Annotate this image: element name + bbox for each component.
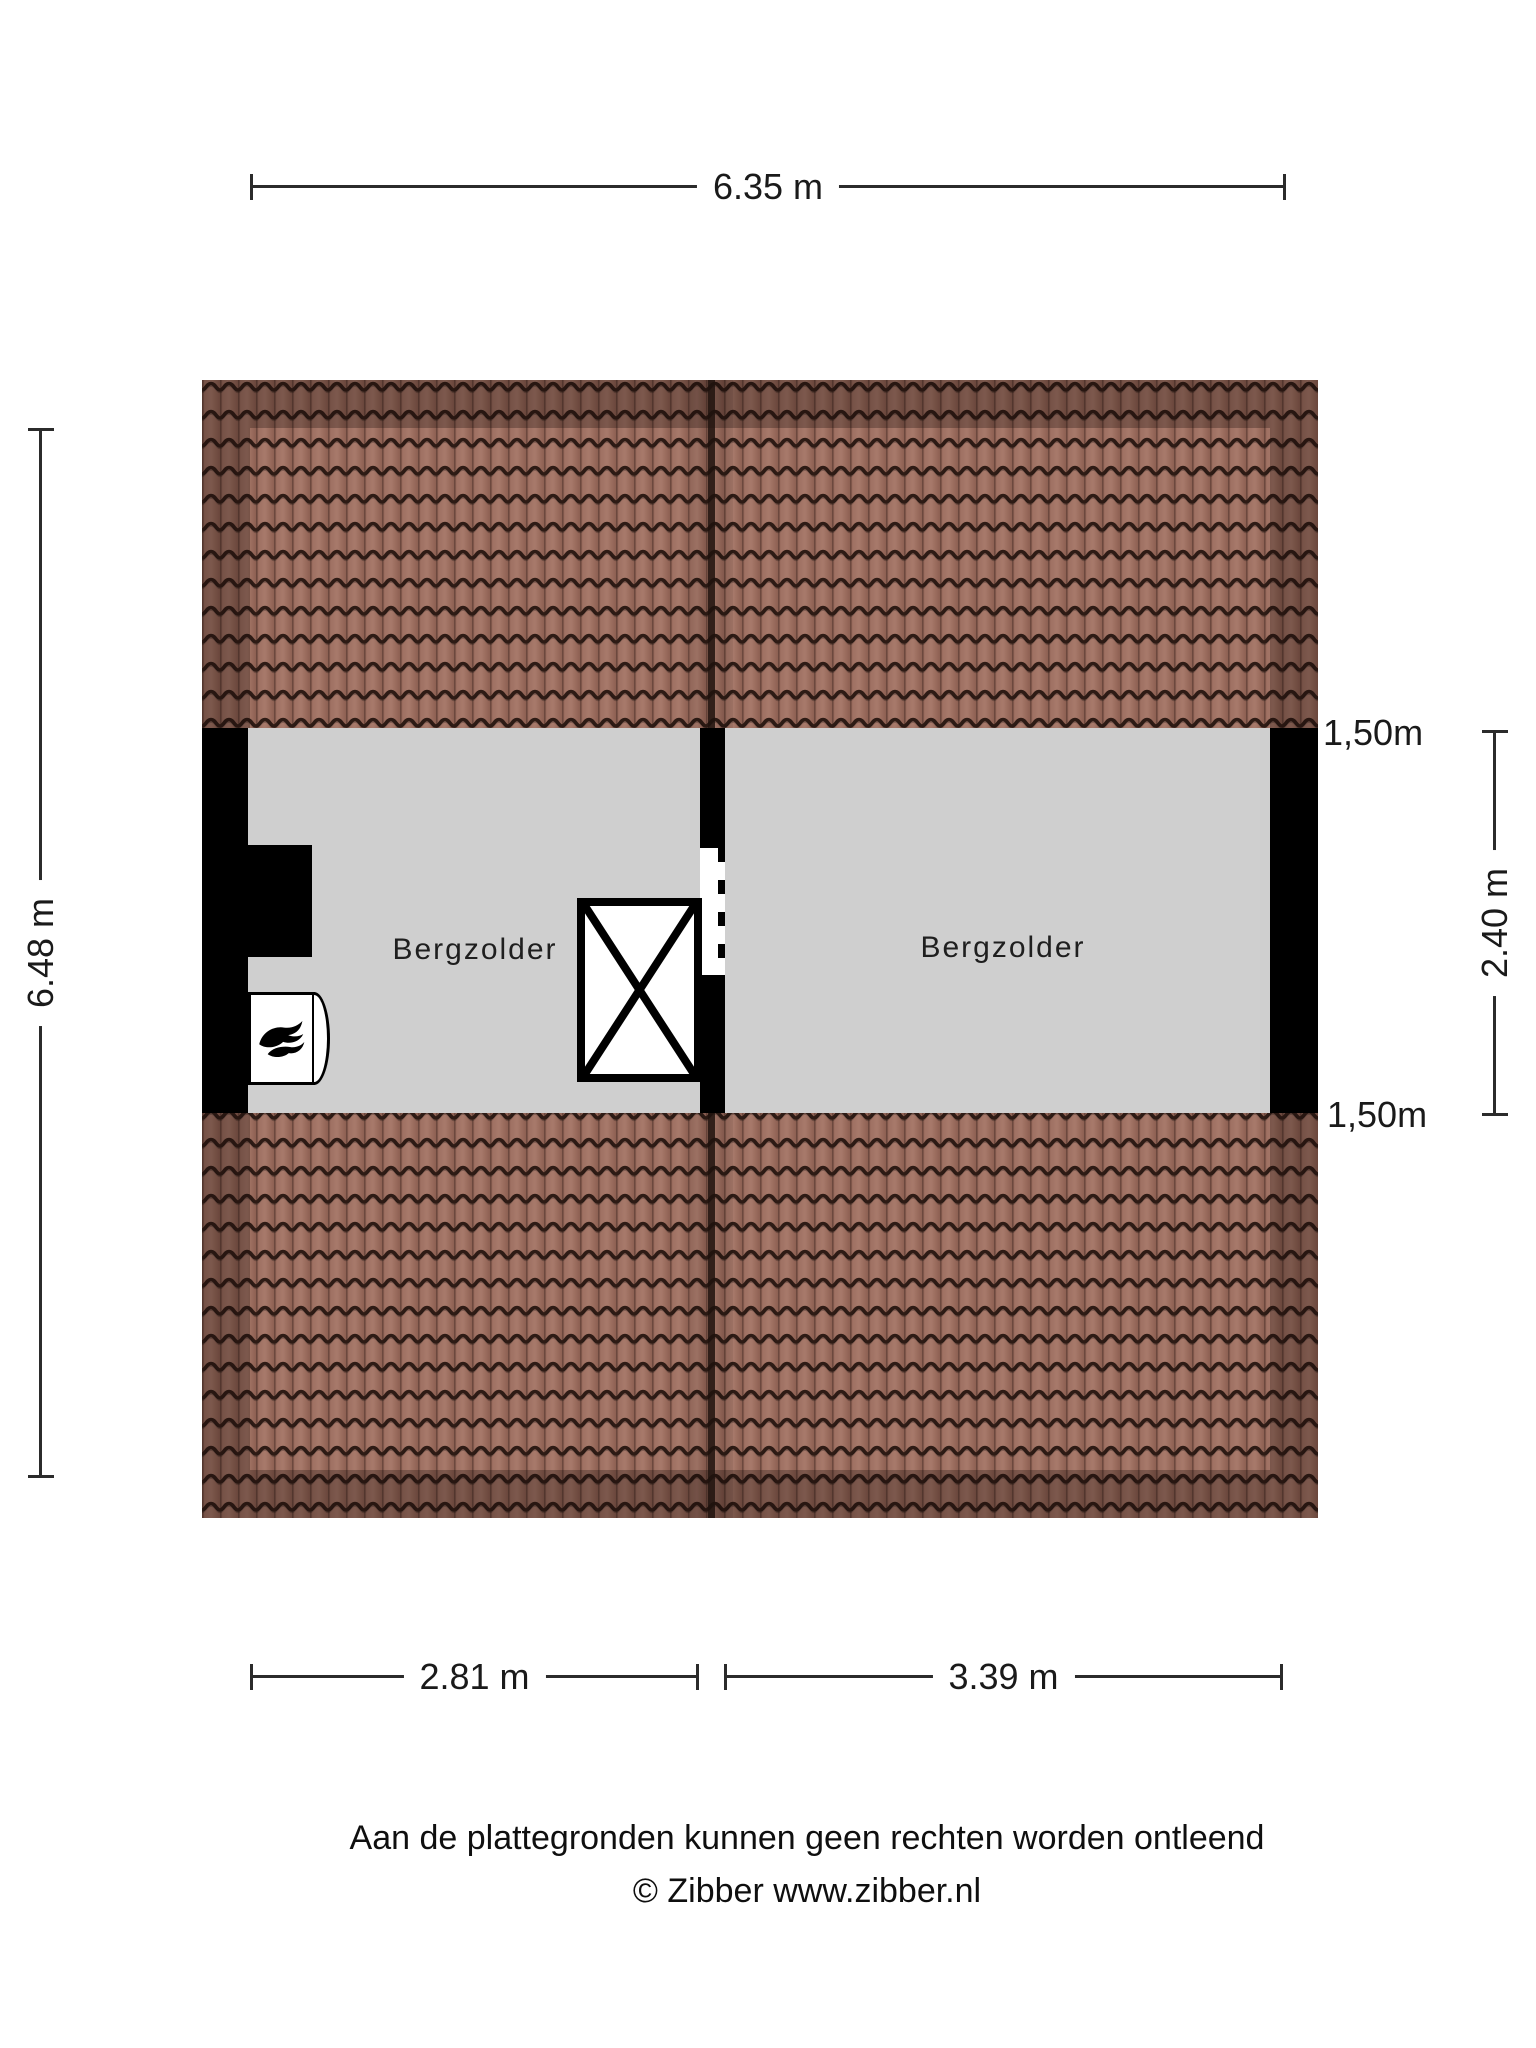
dimension-tick — [250, 174, 253, 200]
left-dimension: 6.48 m — [19, 428, 63, 1478]
bottom-dimension-left: 2.81 m — [250, 1655, 699, 1699]
footer-copyright: © Zibber www.zibber.nl — [350, 1865, 1265, 1918]
stairwell-icon — [577, 898, 702, 1082]
dimension-label: 2.40 m — [1474, 850, 1516, 996]
boiler-icon — [248, 992, 315, 1085]
dimension-tick — [28, 1475, 54, 1478]
dimension-tick — [28, 428, 54, 431]
door-dash-line — [718, 848, 725, 975]
dimension-tick — [250, 1664, 253, 1690]
footer: Aan de plattegronden kunnen geen rechten… — [350, 1812, 1265, 1918]
stairwell-cross — [585, 906, 694, 1074]
chimney-block — [248, 845, 312, 957]
bottom-dimension-right: 3.39 m — [724, 1655, 1283, 1699]
roof-ridge-seam — [708, 1113, 715, 1518]
door-opening — [700, 848, 725, 975]
dimension-label: 6.48 m — [20, 880, 62, 1026]
room-label: Bergzolder — [920, 931, 1085, 965]
dimension-tick — [724, 1664, 727, 1690]
floor-plan: Bergzolder Bergzolder — [202, 380, 1318, 1518]
top-dimension: 6.35 m — [250, 165, 1286, 209]
flame-icon — [256, 1021, 308, 1061]
right-dimension: 2.40 m — [1473, 730, 1517, 1116]
footer-disclaimer: Aan de plattegronden kunnen geen rechten… — [350, 1812, 1265, 1865]
dimension-tick — [1283, 174, 1286, 200]
dimension-tick — [1280, 1664, 1283, 1690]
room-right — [725, 728, 1270, 1113]
interior-band — [202, 728, 1318, 1113]
dimension-tick — [696, 1664, 699, 1690]
roof-ridge-seam — [708, 380, 715, 728]
floorplan-page: 6.35 m 6.48 m 2.40 m 1,50m 1,50m — [0, 0, 1536, 2048]
dimension-label: 6.35 m — [697, 166, 839, 208]
dimension-label: 2.81 m — [403, 1656, 545, 1698]
dimension-label: 3.39 m — [932, 1656, 1074, 1698]
headroom-label-top: 1,50m — [1323, 712, 1423, 754]
room-label: Bergzolder — [392, 933, 557, 967]
dimension-tick — [1482, 1113, 1508, 1116]
dimension-tick — [1482, 730, 1508, 733]
headroom-label-bottom: 1,50m — [1327, 1094, 1427, 1136]
